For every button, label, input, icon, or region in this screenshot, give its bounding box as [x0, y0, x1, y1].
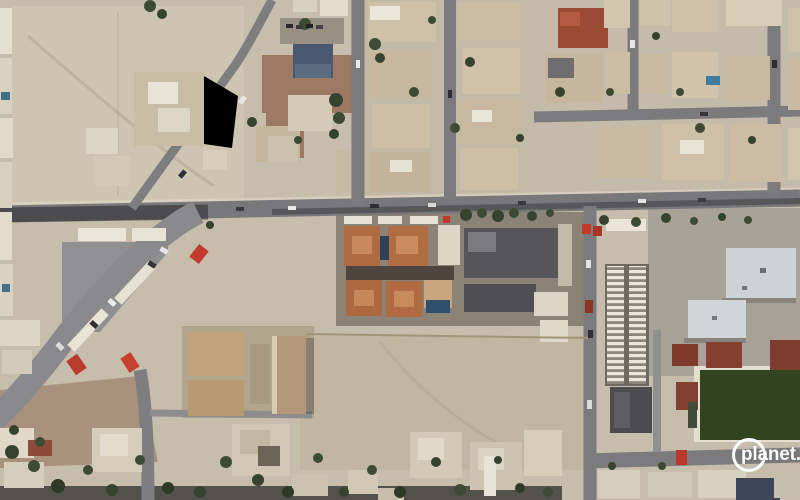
villa	[606, 52, 630, 94]
tree	[106, 484, 118, 496]
car	[586, 260, 591, 268]
carport-row	[629, 266, 646, 384]
villa	[604, 0, 630, 28]
tree	[329, 93, 343, 107]
red-roof-cabin	[770, 340, 800, 370]
edge-building	[0, 8, 12, 54]
villa	[320, 0, 348, 16]
villa	[726, 0, 782, 26]
tree	[5, 445, 19, 459]
tree	[28, 460, 40, 472]
edge-building	[0, 212, 12, 260]
tree	[282, 486, 294, 498]
villa	[370, 6, 400, 20]
car	[630, 40, 635, 48]
tree	[339, 487, 349, 497]
tree	[509, 208, 519, 218]
villa	[724, 56, 770, 100]
tree	[748, 136, 756, 144]
tree	[555, 87, 565, 97]
tree	[294, 136, 302, 144]
tree	[428, 16, 436, 24]
tree	[516, 134, 524, 142]
tree	[252, 474, 264, 486]
tree	[9, 425, 19, 435]
car	[772, 60, 777, 68]
red-vehicle	[443, 216, 450, 223]
parking-pad	[280, 18, 344, 44]
car	[286, 24, 293, 28]
villa	[158, 108, 190, 132]
red-roof-cabin	[706, 342, 742, 368]
villa	[640, 54, 668, 94]
tree	[608, 462, 616, 470]
road-horizontal-topright	[534, 111, 800, 117]
tree	[652, 32, 660, 40]
villa	[774, 472, 800, 498]
car	[700, 112, 708, 116]
tree	[465, 57, 475, 67]
tree	[599, 215, 609, 225]
villa	[640, 0, 670, 26]
red-truck	[585, 300, 593, 313]
villa-court	[258, 446, 280, 466]
pool	[1, 92, 10, 100]
villa	[472, 110, 492, 122]
tree	[454, 484, 466, 496]
villa	[292, 474, 328, 496]
building-shadow	[306, 338, 314, 414]
tree	[477, 208, 487, 218]
car	[316, 25, 323, 29]
car	[518, 201, 526, 205]
car	[448, 90, 452, 98]
tree	[375, 53, 385, 63]
blue-roof-villa	[295, 64, 331, 78]
red-truck	[593, 226, 602, 236]
car	[236, 207, 244, 211]
pool	[706, 76, 720, 85]
villa	[372, 104, 430, 148]
car	[306, 24, 313, 28]
edge-building	[788, 128, 800, 180]
satellite-image-viewport: planet.	[0, 0, 800, 500]
tree	[690, 217, 698, 225]
edge-building	[0, 118, 13, 158]
tree	[83, 465, 93, 475]
warehouse	[188, 332, 244, 376]
tree	[220, 456, 232, 468]
car	[588, 330, 593, 338]
tree	[409, 87, 419, 97]
field-structure	[688, 402, 697, 428]
tree	[631, 217, 641, 227]
villa	[648, 472, 692, 498]
dark-office-building	[468, 232, 496, 252]
villa	[418, 438, 444, 460]
villa	[293, 0, 317, 12]
carport-canopy	[484, 456, 496, 496]
red-truck	[676, 450, 687, 465]
villa	[462, 48, 520, 94]
carport-row	[607, 266, 624, 384]
dark-roof-section	[548, 58, 574, 78]
edge-building	[0, 162, 12, 208]
red-roof-building	[560, 12, 580, 26]
satellite-scene	[0, 0, 800, 500]
roof-vent	[742, 286, 747, 290]
tree	[313, 453, 323, 463]
villa	[268, 136, 298, 162]
tree	[194, 486, 206, 498]
pool	[2, 284, 10, 292]
villa	[390, 160, 412, 172]
compound-court	[346, 266, 454, 280]
tree	[661, 213, 671, 223]
villa	[0, 320, 40, 346]
red-roof-cabin	[672, 344, 698, 366]
edge-building	[0, 58, 12, 114]
dark-office-building	[464, 284, 536, 312]
villa	[534, 292, 568, 316]
villa	[680, 140, 704, 154]
tree	[718, 213, 726, 221]
edge-building	[788, 8, 800, 52]
tree	[460, 209, 472, 221]
warehouse-ridge	[272, 336, 277, 414]
car	[296, 25, 303, 29]
tree	[329, 129, 339, 139]
villa	[458, 2, 520, 40]
orange-villa	[396, 236, 418, 254]
villa	[598, 470, 640, 498]
car	[587, 400, 592, 409]
tree	[162, 482, 174, 494]
carport-canopy	[132, 228, 166, 241]
dark-building	[614, 392, 630, 428]
tree	[527, 211, 537, 221]
tree	[658, 462, 666, 470]
car	[638, 199, 646, 203]
tree	[494, 456, 502, 464]
tree	[367, 465, 377, 475]
villa	[540, 320, 568, 342]
tree	[394, 486, 406, 498]
car	[698, 198, 706, 202]
tree	[431, 457, 441, 467]
villa	[524, 430, 562, 476]
tree	[135, 455, 145, 465]
villa	[203, 150, 227, 170]
tree	[546, 209, 554, 217]
carport-canopy	[344, 216, 372, 224]
car	[370, 204, 379, 208]
carport-canopy	[378, 216, 402, 224]
villa	[730, 124, 782, 182]
tree	[606, 88, 614, 96]
villa	[148, 82, 178, 104]
roof-vent	[760, 268, 766, 273]
carport-canopy	[410, 216, 438, 224]
pool	[426, 300, 450, 313]
red-truck	[582, 224, 591, 234]
villa	[672, 0, 718, 32]
tree	[35, 437, 45, 447]
tree	[744, 216, 752, 224]
tree	[333, 112, 345, 124]
villa	[460, 148, 518, 190]
tree	[492, 210, 504, 222]
roof-vent	[712, 316, 717, 320]
tree	[450, 123, 460, 133]
orange-villa	[352, 236, 372, 254]
warehouse	[250, 344, 270, 404]
sports-field	[700, 370, 800, 440]
tree	[515, 483, 525, 493]
boundary-wall	[558, 224, 572, 286]
white-villa	[438, 225, 460, 265]
tree	[695, 123, 705, 133]
tree	[206, 221, 214, 229]
tree	[543, 487, 553, 497]
orange-villa	[354, 290, 374, 306]
tree	[144, 0, 156, 12]
car	[288, 206, 296, 210]
villa	[86, 128, 118, 154]
car	[356, 60, 360, 68]
villa	[94, 156, 130, 186]
tree	[51, 479, 65, 493]
villa	[2, 350, 32, 374]
villa	[336, 150, 351, 192]
road-horizontal-bottomright	[584, 455, 800, 461]
pool	[380, 236, 389, 260]
tree	[247, 117, 257, 127]
dark-roof-villa	[736, 478, 780, 500]
villa	[100, 434, 128, 456]
carport-canopy	[78, 228, 126, 241]
villa	[600, 126, 654, 178]
orange-villa	[394, 291, 414, 307]
warehouse-long	[272, 336, 306, 414]
tree	[369, 38, 381, 50]
edge-building	[788, 58, 800, 110]
warehouse	[188, 380, 244, 416]
tree	[676, 88, 684, 96]
tree	[157, 9, 167, 19]
car	[428, 203, 436, 207]
villa	[288, 95, 332, 131]
